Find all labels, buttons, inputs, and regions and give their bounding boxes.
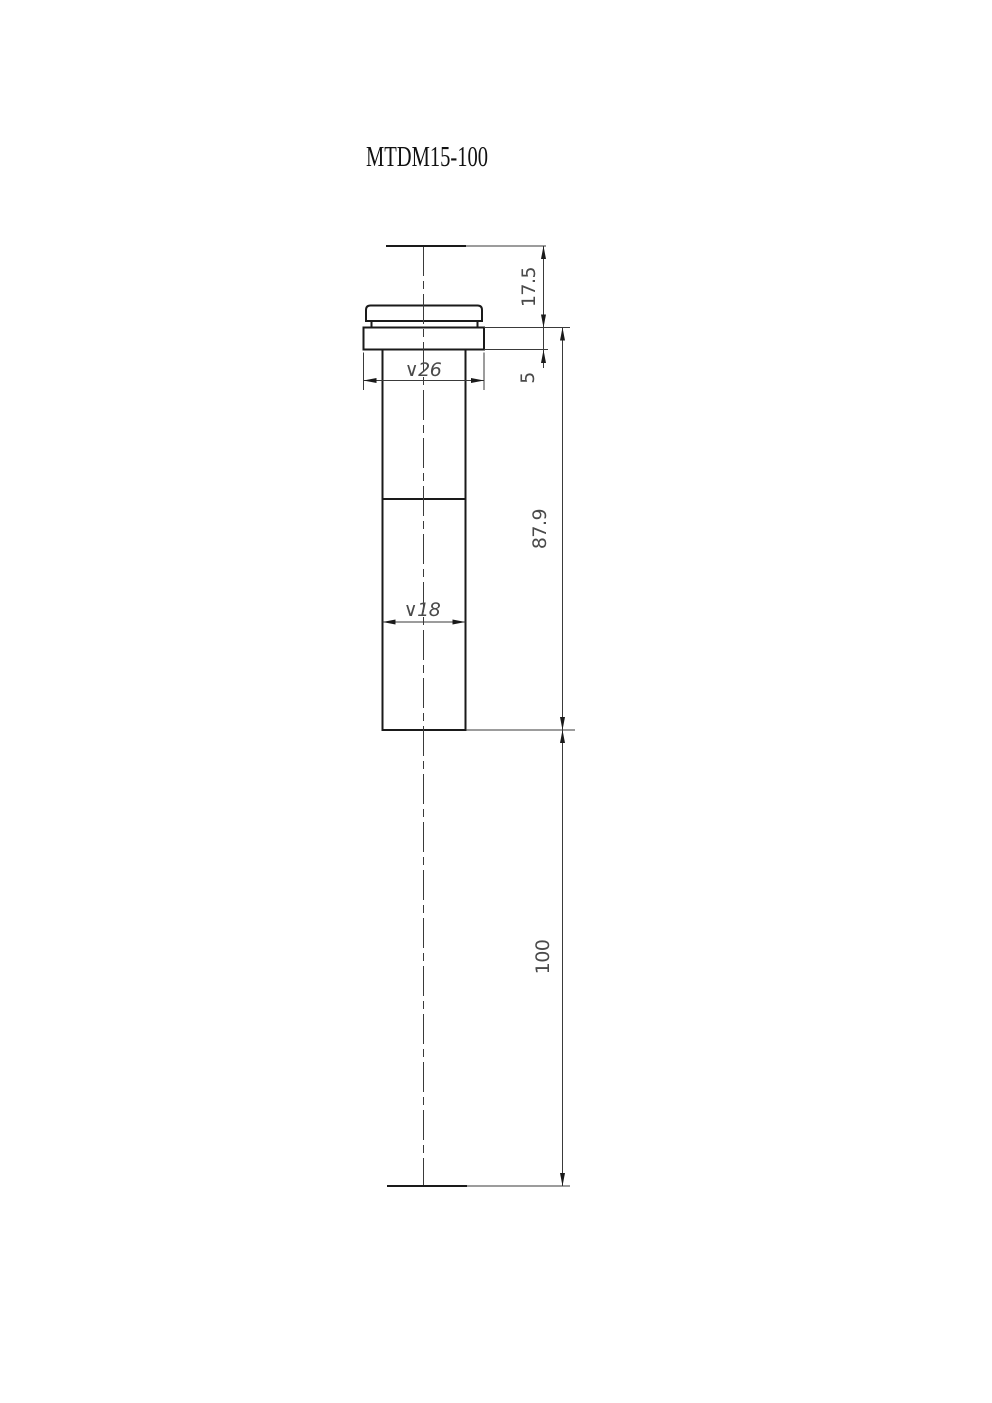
dimension-87-9: 87.9 (529, 328, 565, 731)
dimension-label-diameter-18: ∨18 (404, 599, 441, 621)
arrowhead-up-icon (560, 328, 565, 341)
dimension-label-87-9: 87.9 (529, 509, 551, 549)
arrowhead-up-icon (541, 246, 546, 259)
reference-lines (386, 246, 570, 1186)
arrowhead-right-icon (453, 620, 466, 625)
arrowhead-down-icon (560, 1173, 565, 1186)
dimension-label-17-5: 17.5 (518, 267, 540, 307)
dimension-17-5: 17.5 (518, 246, 546, 328)
arrowhead-up-icon (541, 350, 546, 363)
arrowhead-right-icon (471, 378, 484, 383)
arrowhead-left-icon (383, 620, 396, 625)
arrowhead-down-icon (541, 315, 546, 328)
drawing-sheet: MTDM15-100 (0, 0, 992, 1403)
dimension-diameter-18: ∨18 (383, 599, 466, 625)
dimension-label-diameter-26: ∨26 (405, 359, 442, 381)
arrowhead-down-icon (560, 717, 565, 730)
dimension-label-5: 5 (517, 372, 539, 384)
arrowhead-left-icon (364, 378, 377, 383)
arrowhead-up-icon (560, 730, 565, 743)
dimension-5: 5 (517, 328, 546, 384)
dimension-label-100: 100 (532, 940, 554, 975)
drawing-title: MTDM15-100 (366, 142, 488, 173)
dimension-100: 100 (532, 730, 565, 1186)
technical-drawing: MTDM15-100 (0, 0, 992, 1403)
